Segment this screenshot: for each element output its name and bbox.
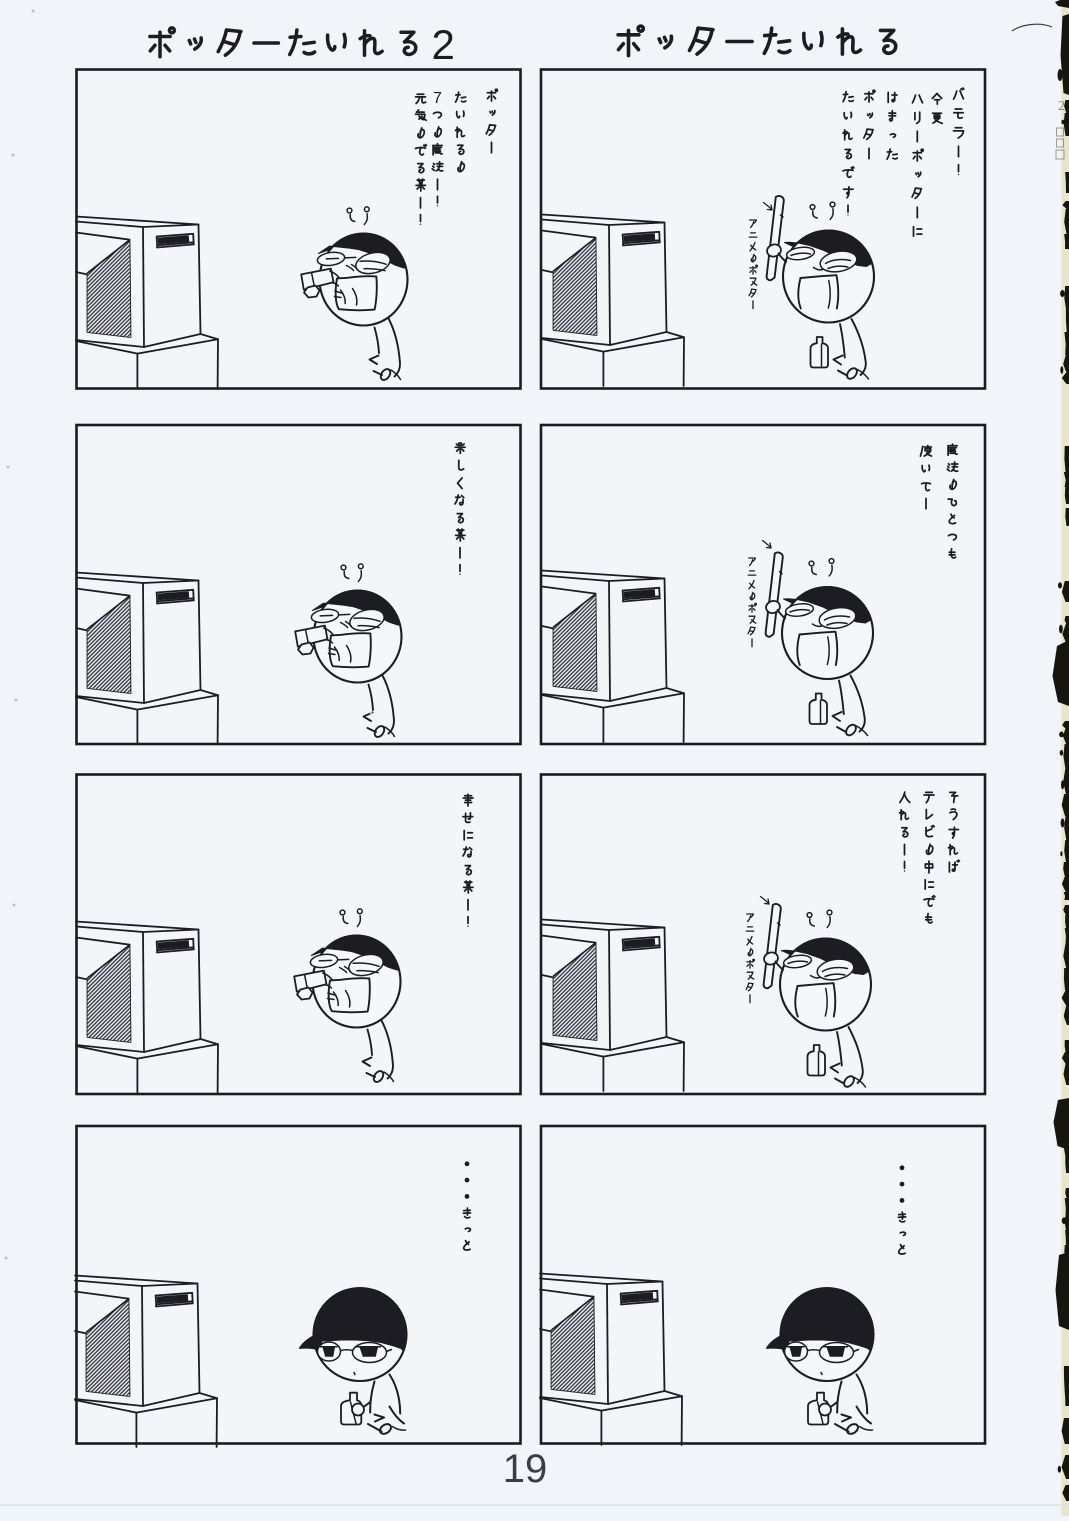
svg-text:2: 2 <box>432 21 455 68</box>
svg-text:7: 7 <box>433 90 442 107</box>
svg-text:19: 19 <box>503 1447 548 1491</box>
svg-text:2: 2 <box>1058 99 1065 114</box>
